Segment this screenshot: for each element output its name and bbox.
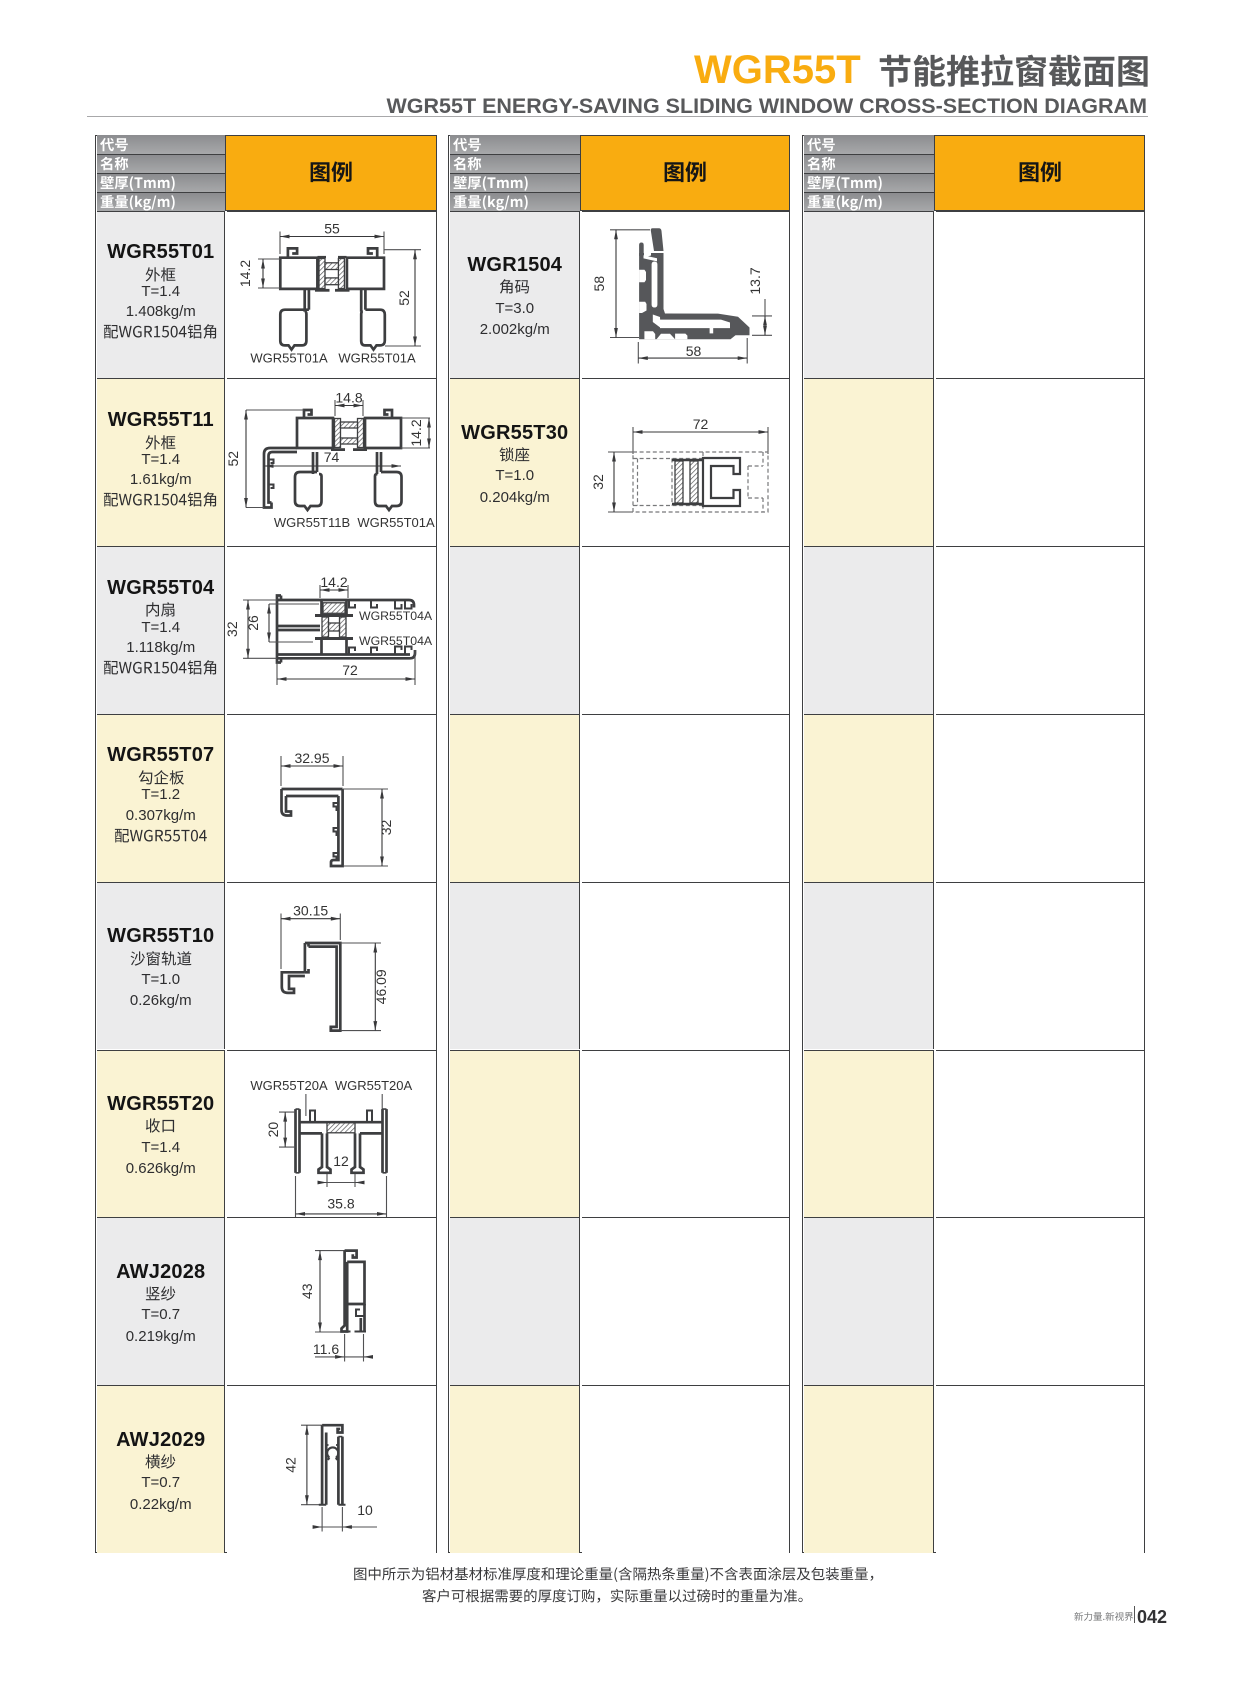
- svg-text:12: 12: [333, 1153, 349, 1169]
- svg-text:WGR55T04A: WGR55T04A: [359, 609, 433, 623]
- svg-text:11.6: 11.6: [313, 1341, 339, 1357]
- svg-text:58: 58: [686, 343, 702, 359]
- svg-text:74: 74: [324, 449, 340, 465]
- svg-text:46.09: 46.09: [373, 969, 389, 1004]
- svg-text:20: 20: [265, 1121, 281, 1137]
- svg-text:WGR55T11B: WGR55T11B: [274, 515, 350, 530]
- svg-text:WGR55T01A: WGR55T01A: [338, 350, 416, 365]
- svg-text:32: 32: [225, 621, 240, 637]
- svg-text:WGR55T01A: WGR55T01A: [357, 515, 435, 530]
- svg-text:43: 43: [299, 1284, 315, 1300]
- svg-text:WGR55T04A: WGR55T04A: [359, 634, 433, 648]
- svg-text:14.2: 14.2: [237, 259, 253, 286]
- svg-text:52: 52: [396, 290, 412, 306]
- svg-text:14.8: 14.8: [335, 390, 362, 406]
- svg-text:10: 10: [357, 1502, 373, 1518]
- svg-text:32: 32: [378, 819, 394, 835]
- svg-text:WGR55T01A: WGR55T01A: [250, 350, 328, 365]
- svg-text:14.2: 14.2: [320, 574, 347, 590]
- svg-text:30.15: 30.15: [293, 902, 328, 918]
- svg-text:52: 52: [225, 451, 241, 467]
- svg-text:72: 72: [693, 416, 709, 432]
- svg-text:14.2: 14.2: [408, 419, 424, 446]
- svg-text:32.95: 32.95: [294, 750, 329, 766]
- svg-text:58: 58: [591, 275, 607, 291]
- svg-text:55: 55: [324, 220, 340, 236]
- svg-text:13.7: 13.7: [747, 267, 763, 294]
- svg-text:32: 32: [590, 474, 606, 490]
- svg-text:42: 42: [283, 1457, 299, 1473]
- svg-text:26: 26: [245, 615, 261, 631]
- svg-text:WGR55T20A: WGR55T20A: [335, 1078, 413, 1093]
- svg-text:72: 72: [342, 662, 358, 678]
- svg-text:35.8: 35.8: [327, 1195, 354, 1211]
- svg-text:WGR55T20A: WGR55T20A: [250, 1078, 328, 1093]
